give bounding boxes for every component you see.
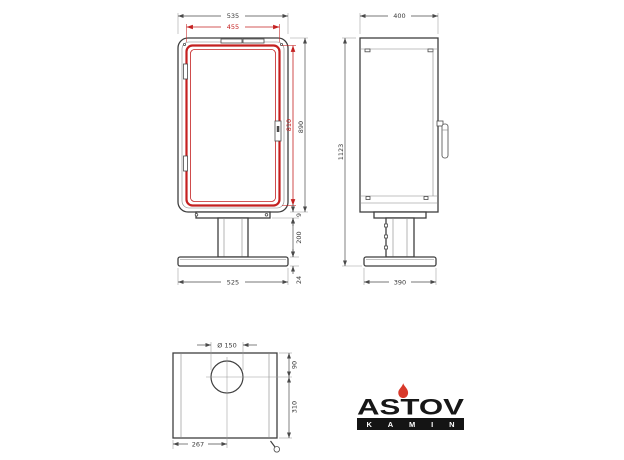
pedestal-side	[385, 218, 415, 257]
dim-flue-from-back: 90	[279, 353, 299, 377]
dim-flue-diameter-label: Ø 150	[217, 341, 237, 349]
dim-total-width-label: 535	[227, 12, 239, 20]
panel-tab	[428, 49, 433, 52]
dim-depth: 400	[360, 12, 438, 34]
dim-overall-height-label: 1123	[337, 144, 345, 161]
technical-drawing-page: 535 455 890 810 9	[0, 0, 624, 460]
base-plate-front	[178, 257, 288, 266]
panel-tab	[365, 49, 370, 52]
stove-body-top	[173, 353, 277, 438]
dim-flue-to-front-label: 310	[291, 401, 299, 413]
panel-tab	[424, 197, 428, 200]
dim-flue-to-front: 310	[279, 377, 299, 438]
pedestal-front	[218, 218, 248, 257]
brand-logo: ASTOV KAMIN	[357, 383, 464, 430]
stove-body-side	[360, 38, 438, 212]
base-plate-side	[364, 257, 436, 266]
panel-tab	[366, 197, 370, 200]
plate-bolt	[195, 214, 198, 217]
dim-plate-gap-label: 9	[295, 213, 303, 217]
mounting-plate-side	[374, 212, 426, 218]
dim-overall-height: 1123	[337, 38, 362, 266]
stove-drawing: 535 455 890 810 9	[0, 0, 624, 460]
door-glass	[191, 50, 276, 202]
dim-flue-from-left: 267	[173, 440, 227, 449]
dim-pedestal-height: 200	[290, 218, 303, 257]
dim-base-width-label: 525	[227, 278, 239, 286]
dim-total-height-label: 890	[297, 121, 305, 133]
plate-bolt	[265, 214, 268, 217]
dim-flue-from-left-label: 267	[192, 440, 204, 448]
dim-base-width: 525	[178, 268, 288, 286]
corner-knob-detail	[271, 441, 280, 452]
dim-base-thickness-label: 24	[295, 276, 303, 284]
dim-flue-from-back-label: 90	[291, 361, 299, 369]
side-view: 400 1123 390	[337, 12, 448, 286]
dim-base-depth: 390	[364, 268, 436, 286]
hinge-top	[184, 64, 188, 79]
top-view: Ø 150 90 310 267	[173, 341, 299, 452]
dim-door-height-label: 810	[285, 119, 293, 131]
mounting-plate-front	[196, 212, 270, 218]
hinge-bottom	[184, 156, 188, 171]
front-view: 535 455 890 810 9	[178, 12, 308, 286]
dim-pedestal-height-label: 200	[295, 231, 303, 243]
dim-depth-label: 400	[393, 12, 405, 20]
dim-base-thickness: 24	[290, 249, 303, 284]
brand-name: ASTOV	[357, 395, 464, 420]
door-latch-pin	[277, 126, 280, 132]
screw-icon	[183, 43, 185, 45]
dim-base-depth-label: 390	[394, 278, 406, 286]
dim-door-width-label: 455	[227, 23, 239, 31]
